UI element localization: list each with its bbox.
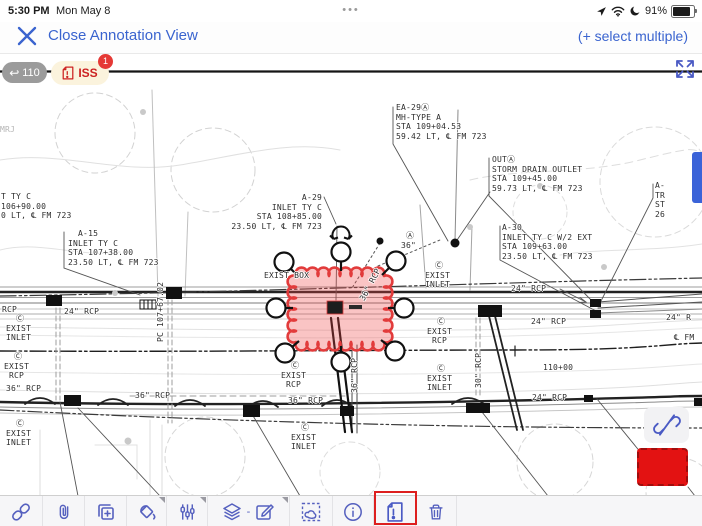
rotate-handle[interactable] (330, 227, 352, 240)
revision-count-badge[interactable]: ↩ 110 (2, 62, 47, 83)
issue-document-icon (62, 66, 74, 80)
label-cl-fm: ℄ FM (674, 333, 694, 343)
layers-spaces-tool-button[interactable]: - (208, 496, 290, 526)
callout-storm-drain-outlet: OUTⒶ STORM DRAIN OUTLET STA 109+45.00 59… (492, 155, 583, 193)
callout-a15: A-15 INLET TY C STA 107+38.00 23.50 LT, … (68, 229, 159, 267)
sliders-icon (177, 501, 198, 523)
paint-bucket-icon (136, 501, 158, 523)
cloud-annotation[interactable] (267, 227, 414, 372)
handle-left[interactable] (267, 299, 286, 318)
info-tool-button[interactable] (333, 496, 374, 526)
info-icon (342, 501, 364, 523)
label-exist-inlet: Ⓒ EXIST INLET (427, 364, 452, 393)
lasso-select-tool-button[interactable] (290, 496, 333, 526)
battery-icon (671, 5, 695, 18)
handle-bottom-right[interactable] (386, 342, 405, 361)
layers-icon (220, 501, 244, 523)
nav-bar: Close Annotation View (+ select multiple… (0, 22, 702, 54)
label-36-rcp: 36" RCP (288, 396, 323, 406)
submenu-corner-marker (282, 497, 288, 503)
handle-right[interactable] (395, 299, 414, 318)
label-24-r-clipped: 24" R (666, 313, 691, 323)
label-exist-inlet: Ⓒ EXIST INLET (425, 261, 450, 290)
annotation-view-screen: EA-29Ⓐ MH-TYPE A STA 109+04.53 59.42 LT,… (0, 0, 702, 526)
compose-icon (253, 501, 277, 523)
label-24-rcp: 24" RCP (511, 284, 546, 294)
label-30-rcp-vertical: 30" RCP (474, 353, 484, 388)
handle-top-right[interactable] (387, 252, 406, 271)
label-36-rcp: 36" RCP (6, 384, 41, 394)
label-24-rcp: 24" RCP (531, 317, 566, 327)
handle-top-center[interactable] (332, 243, 351, 262)
label-exist-rcp: Ⓒ EXIST RCP (4, 352, 29, 381)
label-36-rcp-vertical: 36" RCP (350, 358, 360, 393)
link-icon (10, 501, 32, 523)
submenu-corner-marker (200, 497, 206, 503)
label-exist-rcp: Ⓒ EXIST RCP (281, 361, 306, 390)
location-icon (596, 6, 607, 17)
status-bar: 5:30 PM Mon May 8 ••• 91% (0, 0, 702, 22)
callout-clipped-left: T TY C 106+90.00 0 LT, ℄ FM 723 (1, 192, 72, 221)
lasso-cloud-icon (300, 501, 322, 523)
duplicate-icon (95, 501, 117, 523)
callout-ea29: EA-29Ⓐ MH-TYPE A STA 109+04.53 59.42 LT,… (396, 103, 487, 141)
label-pc-station: PC 107+67.02 (156, 282, 166, 342)
callout-clipped-right: A- TR ST 26 (655, 181, 665, 219)
trash-tool-button[interactable] (416, 496, 457, 526)
trash-icon (426, 501, 446, 523)
unlink-button[interactable] (644, 407, 689, 443)
handle-top-left[interactable] (275, 253, 294, 272)
label-exist-inlet: Ⓒ EXIST INLET (6, 419, 31, 448)
label-station-110: 110+00 (543, 363, 573, 373)
label-exist-inlet: Ⓒ EXIST INLET (6, 314, 31, 343)
duplicate-tool-button[interactable] (85, 496, 127, 526)
callout-a29: A-29 INLET TY C STA 108+85.00 23.50 LT, … (226, 193, 322, 231)
wifi-icon (611, 6, 625, 17)
undo-arrow-icon: ↩ (9, 68, 19, 78)
label-a-36: Ⓐ 36" (401, 231, 416, 250)
revision-count: 110 (22, 67, 40, 79)
flag-document-icon (385, 501, 405, 523)
label-24-rcp: 24" RCP (532, 393, 567, 403)
link-tool-button[interactable] (0, 496, 43, 526)
issue-label: ISS (78, 66, 97, 80)
paperclip-icon (54, 501, 74, 523)
layers-separator: - (247, 506, 251, 518)
close-annotation-view-button[interactable]: Close Annotation View (48, 27, 198, 44)
submenu-corner-marker (159, 497, 165, 503)
label-24-rcp: 24" RCP (64, 307, 99, 317)
issue-count-badge: 1 (98, 54, 113, 69)
label-exist-inlet: Ⓒ EXIST INLET (291, 423, 316, 452)
rectangle-annotation[interactable] (637, 448, 688, 486)
scroll-indicator[interactable] (692, 152, 702, 203)
label-36-rcp: 36" RCP (135, 391, 170, 401)
annotation-toolbar: - (0, 495, 702, 526)
handle-bottom-left[interactable] (276, 344, 295, 363)
label-mrj: MRJ (0, 125, 15, 135)
close-icon[interactable] (16, 25, 38, 47)
label-exist-box: EXIST BOX (264, 271, 309, 281)
label-exist-rcp: Ⓒ EXIST RCP (427, 317, 452, 346)
battery-percent: 91% (645, 5, 667, 17)
handle-bottom-center[interactable] (332, 353, 351, 372)
select-multiple-button[interactable]: (+ select multiple) (578, 28, 688, 44)
broken-link-icon (652, 412, 682, 438)
flag-document-tool-button[interactable] (374, 496, 416, 526)
expand-icon[interactable] (673, 57, 697, 81)
attachment-tool-button[interactable] (43, 496, 85, 526)
moon-icon (629, 5, 641, 17)
callout-a30: A-30 INLET TY C W/2 EXT STA 109+63.00 23… (502, 223, 593, 261)
label-rcp: RCP (2, 305, 17, 315)
